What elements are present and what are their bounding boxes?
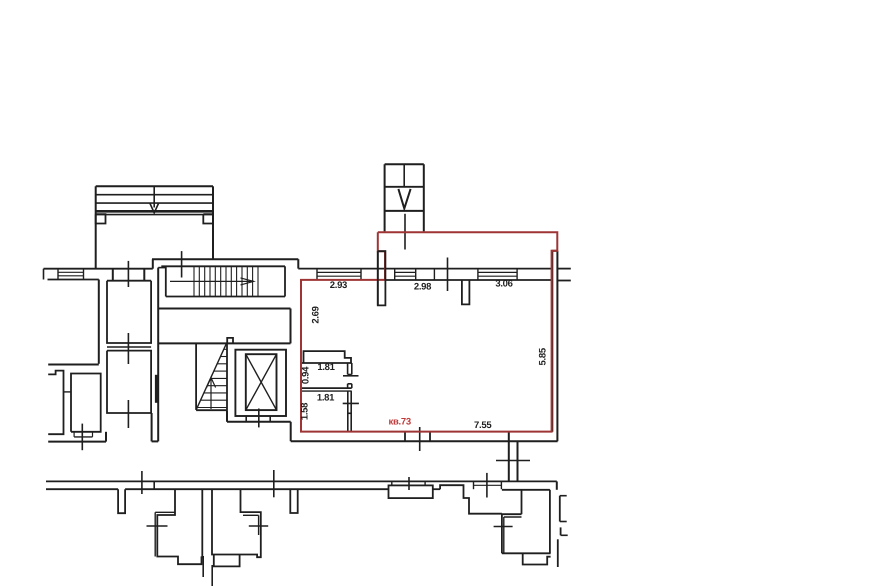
svg-text:3.06: 3.06	[495, 278, 512, 289]
svg-text:5.85: 5.85	[537, 347, 548, 365]
svg-text:1.58: 1.58	[299, 403, 310, 420]
svg-text:2.93: 2.93	[330, 280, 347, 291]
svg-text:1.81: 1.81	[317, 393, 335, 404]
svg-text:2.98: 2.98	[414, 282, 431, 293]
svg-text:0.94: 0.94	[300, 366, 311, 384]
svg-text:кв.73: кв.73	[389, 416, 411, 427]
svg-text:2.69: 2.69	[311, 306, 322, 323]
svg-text:7.55: 7.55	[474, 420, 492, 431]
svg-text:1.81: 1.81	[317, 362, 335, 373]
